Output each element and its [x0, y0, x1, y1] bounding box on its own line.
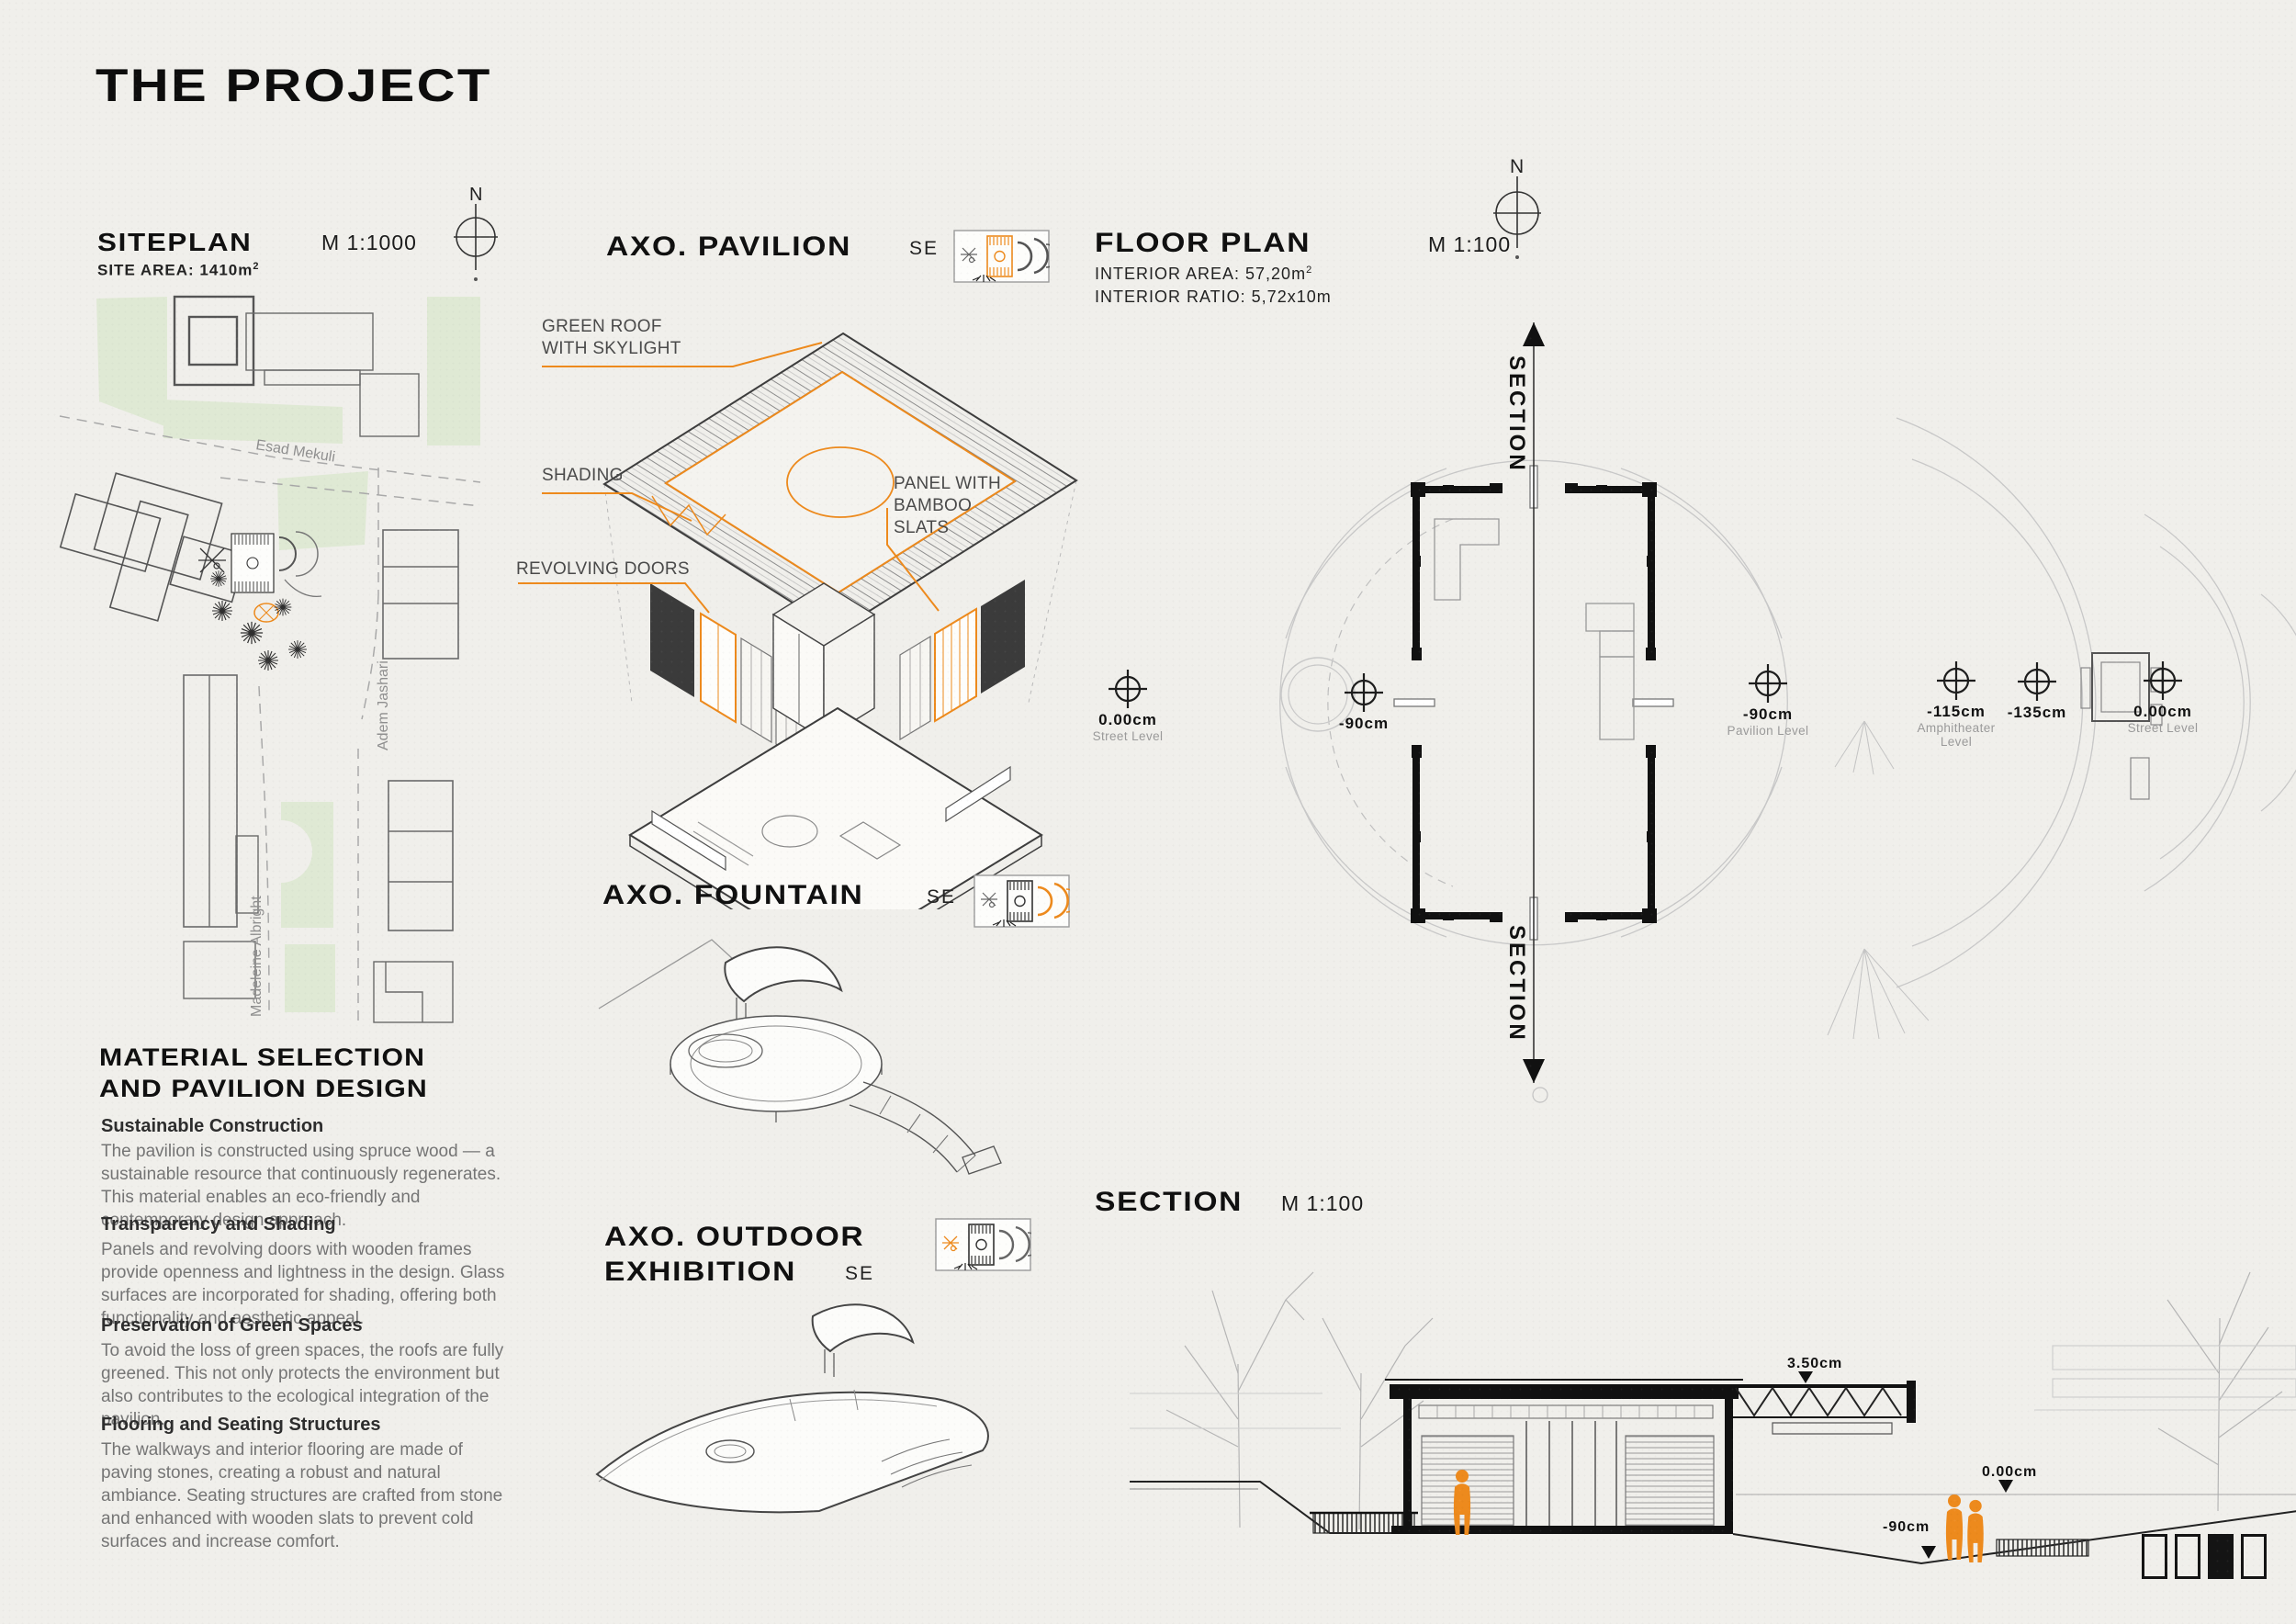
axo-pavilion-title: AXO. PAVILION [606, 231, 851, 263]
section-label-floor: -90cm [1883, 1519, 1930, 1535]
section-line-label-top: SECTION [1504, 355, 1529, 473]
material-paragraph: Transparency and Shading Panels and revo… [101, 1214, 516, 1330]
page-dot-2[interactable] [2175, 1534, 2200, 1579]
axo-fountain-thumbnail-icon [974, 874, 1070, 928]
level-marker: -90cm [1295, 671, 1433, 733]
section-header: SECTION M 1:100 [1095, 1185, 1480, 1218]
page-indicator [2142, 1534, 2267, 1579]
crosshair-icon [1747, 662, 1789, 705]
crosshair-icon [1107, 668, 1149, 710]
page-title: THE PROJECT [96, 59, 492, 112]
material-heading-line2: AND PAVILION DESIGN [99, 1075, 428, 1103]
page-dot-1[interactable] [2142, 1534, 2167, 1579]
level-marker: -90cm Pavilion Level [1699, 662, 1837, 738]
crosshair-icon [2142, 660, 2184, 702]
section-label-street: 0.00cm [1982, 1464, 2037, 1480]
svg-text:N: N [1510, 156, 1524, 177]
axo-outdoor-header-line1: AXO. OUTDOOR [604, 1220, 990, 1253]
axo-pavilion-drawing [514, 308, 1102, 909]
label-green-roof: GREEN ROOF WITH SKYLIGHT [542, 316, 693, 360]
axo-fountain-drawing [588, 926, 1019, 1197]
page-dot-4[interactable] [2241, 1534, 2267, 1579]
siteplan-area: SITE AREA: 1410m2 [97, 261, 260, 280]
material-paragraph: Flooring and Seating Structures The walk… [101, 1415, 516, 1553]
section-line-label-bottom: SECTION [1504, 925, 1529, 1043]
siteplan-pavilion-icon [198, 532, 321, 671]
axo-fountain-direction: SE [927, 886, 956, 908]
street-adem-jashari: Adem Jashari [376, 660, 391, 750]
axo-outdoor-title-line1: AXO. OUTDOOR [604, 1222, 864, 1253]
siteplan-drawing: Esad Mekuli Adem Jashari Madeleine Albri… [55, 289, 496, 1029]
level-marker: 0.00cm Street Level [2094, 660, 2232, 735]
crosshair-icon [1343, 671, 1385, 714]
section-drawing: 3.50cm 0.00cm -90cm [1130, 1235, 2296, 1621]
level-marker: -135cm [1968, 660, 2106, 722]
north-compass-icon: N [452, 182, 500, 288]
siteplan-scale: M 1:1000 [321, 231, 417, 255]
label-bamboo-panel: PANEL WITH BAMBOO SLATS [894, 473, 1022, 539]
siteplan-title: SITEPLAN [97, 228, 253, 257]
section-title: SECTION [1095, 1187, 1243, 1218]
siteplan-header: SITEPLAN M 1:1000 [97, 226, 483, 257]
axo-outdoor-drawing [579, 1281, 1019, 1543]
axo-pavilion-direction: SE [909, 238, 939, 260]
level-marker: 0.00cm Street Level [1059, 668, 1197, 743]
axo-fountain-title: AXO. FOUNTAIN [602, 880, 863, 911]
material-heading-line1: MATERIAL SELECTION [99, 1043, 425, 1072]
section-scale: M 1:100 [1281, 1191, 1364, 1216]
section-label-roof: 3.50cm [1787, 1356, 1842, 1371]
label-shading: SHADING [542, 465, 624, 487]
axo-pavilion-thumbnail-icon [953, 230, 1050, 283]
axo-outdoor-thumbnail-icon [935, 1218, 1031, 1271]
street-madeleine-albright: Madeleine Albright [249, 896, 264, 1017]
presentation-board: THE PROJECT SITEPLAN M 1:1000 SITE AREA:… [0, 0, 2296, 1624]
crosshair-icon [2016, 660, 2058, 703]
label-revolving-doors: REVOLVING DOORS [516, 558, 690, 581]
svg-text:N: N [469, 185, 482, 205]
page-dot-3[interactable] [2208, 1534, 2234, 1579]
